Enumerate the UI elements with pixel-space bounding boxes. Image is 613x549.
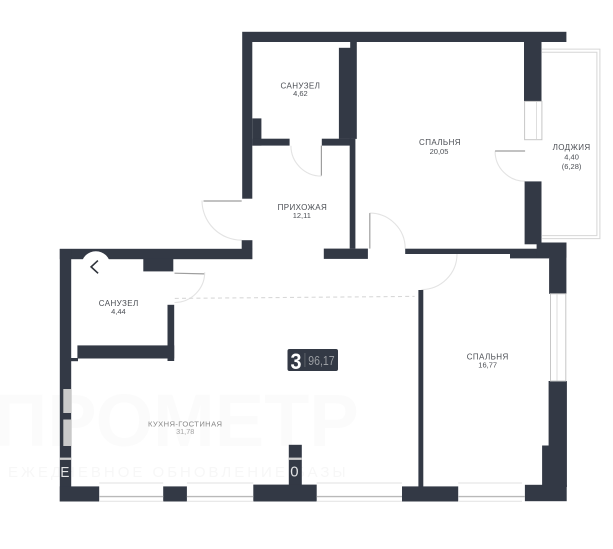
svg-text:4,44: 4,44 [111,307,126,316]
svg-text:31,78: 31,78 [176,427,194,436]
svg-text:0: 0 [290,463,298,480]
svg-text:12,11: 12,11 [293,211,311,220]
svg-text:4,62: 4,62 [293,89,308,98]
svg-text:Е: Е [60,464,69,481]
svg-text:4,40: 4,40 [564,153,579,162]
svg-text:96,17: 96,17 [308,353,334,368]
svg-text:ЛОДЖИЯ: ЛОДЖИЯ [553,143,591,152]
svg-text:16,77: 16,77 [478,361,497,370]
svg-text:3: 3 [291,349,302,374]
svg-text:20,05: 20,05 [430,147,449,156]
svg-text:(6,28): (6,28) [562,162,582,171]
